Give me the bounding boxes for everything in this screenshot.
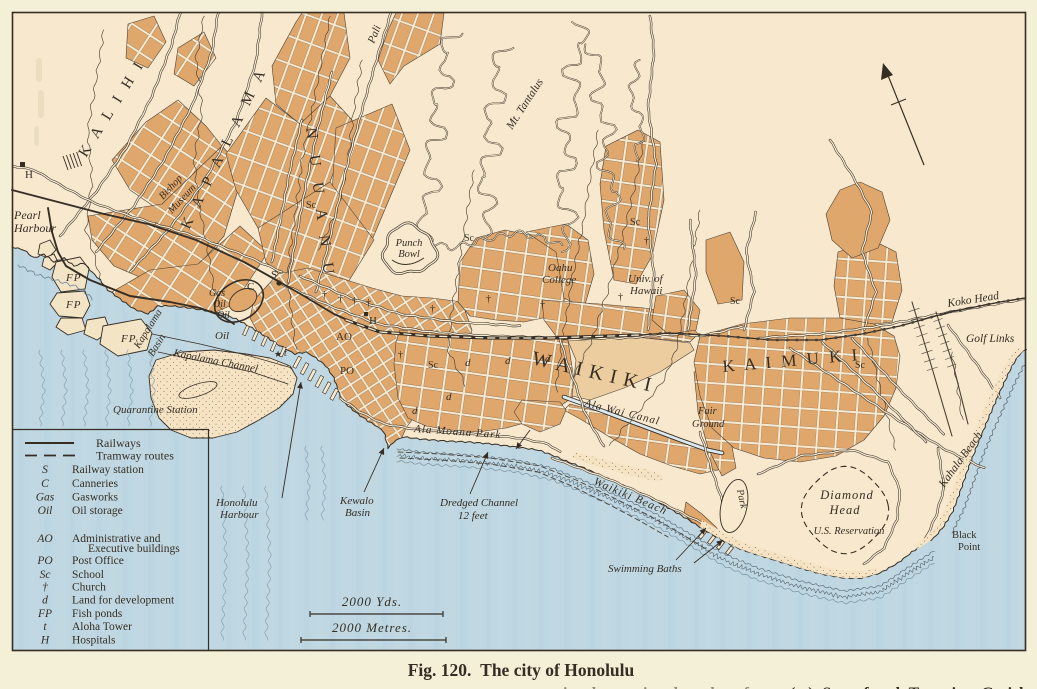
svg-text:†: †: [486, 294, 491, 305]
svg-text:Sc: Sc: [464, 233, 475, 244]
svg-text:Sc: Sc: [40, 569, 51, 581]
svg-text:Sc: Sc: [855, 360, 866, 371]
svg-text:Honolulu: Honolulu: [215, 497, 258, 509]
svg-text:Gas: Gas: [36, 492, 55, 504]
svg-text:Oil: Oil: [213, 299, 226, 310]
svg-text:Diamond: Diamond: [819, 488, 874, 502]
svg-text:★: ★: [274, 349, 282, 359]
svg-text:Bowl: Bowl: [398, 249, 420, 260]
svg-text:†: †: [322, 290, 327, 301]
svg-text:Oil: Oil: [217, 310, 230, 321]
svg-text:Gas: Gas: [209, 288, 225, 299]
svg-text:C: C: [41, 478, 49, 490]
svg-text:d: d: [545, 353, 551, 365]
svg-text:Land for development: Land for development: [72, 595, 175, 607]
svg-text:Church: Church: [72, 582, 106, 594]
svg-text:AO: AO: [36, 533, 53, 545]
svg-text:Hawaii: Hawaii: [629, 285, 662, 297]
svg-text:Pearl: Pearl: [13, 208, 41, 222]
svg-text:Executive buildings: Executive buildings: [88, 543, 180, 555]
svg-text:Swimming Baths: Swimming Baths: [608, 563, 682, 575]
svg-text:†: †: [540, 300, 545, 311]
svg-text:Harbour: Harbour: [13, 221, 56, 235]
svg-text:(a) Stanford Tourist Guide: (a) Stanford Tourist Guide: [790, 685, 1033, 689]
svg-text:Fish ponds: Fish ponds: [72, 608, 123, 620]
svg-text:FP: FP: [65, 299, 81, 311]
svg-text:PO: PO: [36, 555, 53, 567]
svg-text:Tramway routes: Tramway routes: [96, 449, 174, 463]
svg-text:Sc: Sc: [630, 217, 641, 228]
svg-text:Hospitals: Hospitals: [72, 635, 116, 647]
svg-text:Sc: Sc: [428, 360, 439, 371]
svg-text:Oahu: Oahu: [548, 262, 573, 274]
svg-text:School: School: [72, 569, 104, 581]
svg-text:is shown in the plan from: is shown in the plan from: [563, 685, 784, 689]
svg-text:Dredged Channel: Dredged Channel: [439, 497, 518, 509]
svg-text:d: d: [505, 355, 511, 367]
svg-text:12 feet: 12 feet: [458, 510, 489, 522]
svg-text:Point: Point: [958, 542, 980, 553]
svg-text:Oil storage: Oil storage: [72, 505, 123, 517]
svg-text:Sc: Sc: [306, 200, 317, 211]
svg-text:†: †: [366, 298, 371, 309]
svg-text:Oil: Oil: [38, 505, 53, 517]
svg-text:U.S. Reservation: U.S. Reservation: [814, 526, 885, 537]
svg-text:Aloha Tower: Aloha Tower: [72, 621, 132, 633]
svg-text:Sc: Sc: [730, 296, 741, 307]
svg-text:2000 Metres.: 2000 Metres.: [332, 620, 412, 635]
svg-text:†: †: [338, 294, 343, 305]
svg-text:Fig. 120. The city of Honolul: Fig. 120. The city of Honolulu: [408, 660, 635, 680]
svg-text:Head: Head: [828, 503, 860, 517]
svg-text:†: †: [644, 236, 649, 247]
svg-text:†: †: [398, 350, 403, 361]
svg-text:Harbour: Harbour: [219, 509, 259, 521]
svg-text:Gasworks: Gasworks: [72, 492, 119, 504]
svg-text:d: d: [412, 405, 418, 417]
svg-text:†: †: [430, 304, 435, 315]
svg-text:Railway station: Railway station: [72, 464, 144, 476]
svg-text:Quarantine Station: Quarantine Station: [113, 404, 198, 416]
svg-text:Black: Black: [952, 530, 977, 541]
svg-text:Ground: Ground: [692, 419, 725, 430]
svg-text:College: College: [542, 274, 576, 286]
svg-text:2000 Yds.: 2000 Yds.: [342, 594, 402, 609]
svg-text:Univ. of: Univ. of: [628, 273, 665, 285]
svg-text:Post Office: Post Office: [72, 555, 124, 567]
svg-text:AO: AO: [336, 331, 352, 343]
svg-text:t: t: [284, 348, 287, 359]
svg-text:d: d: [465, 357, 471, 369]
svg-text:Basin: Basin: [345, 507, 371, 519]
svg-text:d: d: [446, 391, 452, 403]
svg-text:C: C: [247, 281, 254, 293]
svg-text:Kewalo: Kewalo: [339, 495, 374, 507]
svg-text:PO: PO: [340, 365, 354, 377]
svg-text:Golf Links: Golf Links: [966, 333, 1015, 345]
svg-text:†: †: [352, 296, 357, 307]
svg-text:Canneries: Canneries: [72, 478, 119, 490]
svg-text:d: d: [42, 595, 48, 607]
svg-text:FP: FP: [37, 608, 52, 620]
svg-text:†: †: [618, 292, 623, 303]
svg-text:Fair: Fair: [697, 406, 718, 417]
svg-text:†: †: [42, 582, 48, 594]
svg-text:H: H: [25, 169, 33, 181]
svg-text:Punch: Punch: [395, 238, 423, 249]
svg-text:S: S: [42, 464, 48, 476]
svg-text:H: H: [40, 635, 50, 647]
svg-text:H: H: [369, 315, 377, 327]
svg-text:Oil: Oil: [215, 330, 229, 342]
svg-text:S: S: [271, 269, 277, 281]
